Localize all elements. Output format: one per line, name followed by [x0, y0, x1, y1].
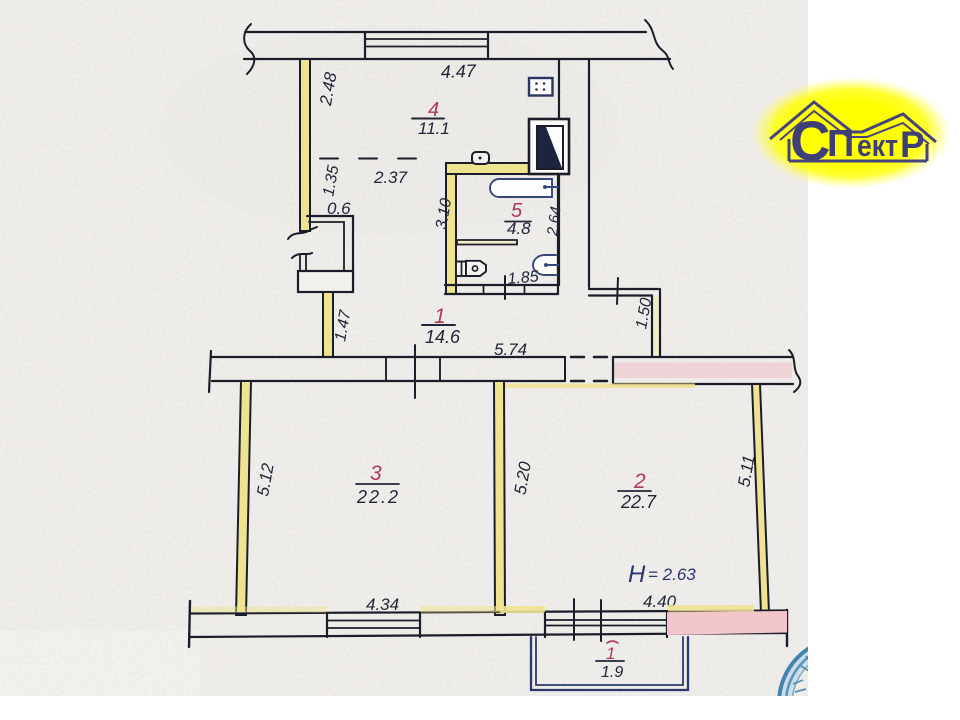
svg-text:11.1: 11.1 — [418, 119, 450, 138]
svg-text:4.8: 4.8 — [507, 219, 531, 238]
svg-text:14.6: 14.6 — [425, 327, 461, 347]
svg-text:4.47: 4.47 — [440, 61, 477, 82]
svg-text:Р: Р — [900, 124, 925, 165]
svg-text:2.37: 2.37 — [373, 168, 408, 187]
svg-text:С: С — [790, 109, 830, 172]
svg-text:П: П — [827, 123, 854, 165]
svg-text:22.7: 22.7 — [620, 492, 657, 512]
svg-text:3: 3 — [370, 462, 382, 485]
svg-text:ект: ект — [857, 128, 898, 163]
svg-text:2: 2 — [633, 470, 646, 493]
svg-text:H: H — [628, 561, 646, 588]
svg-text:22.2: 22.2 — [356, 487, 400, 507]
svg-text:4.34: 4.34 — [366, 595, 399, 614]
svg-text:1.85: 1.85 — [507, 268, 540, 288]
svg-text:0.6: 0.6 — [327, 199, 351, 218]
svg-text:= 2.63: = 2.63 — [648, 565, 696, 584]
svg-text:1.9: 1.9 — [601, 664, 623, 681]
